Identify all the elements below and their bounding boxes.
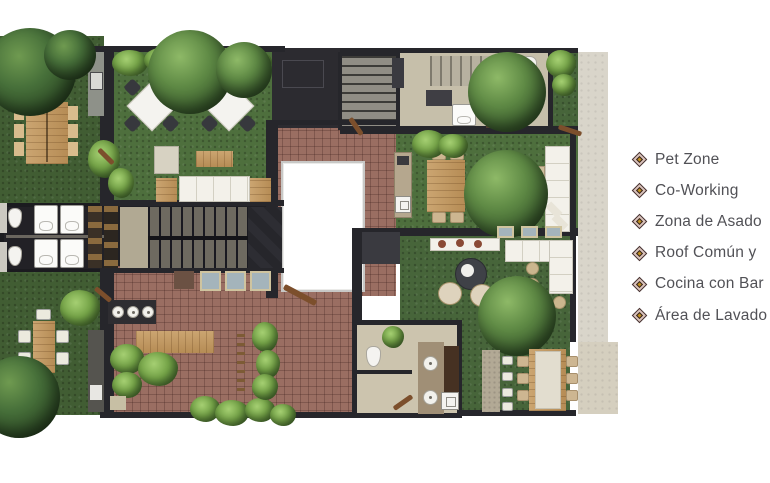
chair <box>18 330 31 343</box>
potted-plant <box>382 326 404 348</box>
legend-label: Cocina con Bar <box>655 275 764 293</box>
chair <box>56 330 69 343</box>
closet <box>426 90 452 106</box>
sidewalk-upper <box>578 52 608 342</box>
legend-label: Pet Zone <box>655 151 720 169</box>
roof-ladder <box>237 334 245 396</box>
skylight <box>521 226 538 238</box>
legend-item-zona-de-asado: Zona de Asado <box>634 206 770 237</box>
l-sofa-side <box>549 240 573 294</box>
legend-item-area-de-lavado: Área de Lavado <box>634 300 770 331</box>
chair <box>566 373 578 384</box>
bench <box>14 124 24 138</box>
side-table <box>156 178 177 202</box>
skylight <box>497 226 514 238</box>
roof-hatch <box>282 60 324 88</box>
legend-item-roof-comun: Roof Común y <box>634 238 770 269</box>
laundry-shelf <box>88 206 102 268</box>
stove <box>395 196 411 213</box>
stone-paver <box>482 350 500 412</box>
washing-machine <box>34 239 58 268</box>
washing-machine <box>60 205 84 234</box>
round-sink <box>127 306 139 318</box>
round-sink <box>423 390 438 405</box>
table-tray <box>461 264 474 277</box>
skylight <box>225 271 246 291</box>
washing-machine <box>60 239 84 268</box>
bush <box>215 400 249 426</box>
stove <box>441 392 459 410</box>
chair <box>56 352 69 365</box>
side-table <box>250 178 271 202</box>
tree <box>44 30 96 80</box>
tree <box>216 42 272 98</box>
planter-bush <box>108 168 134 198</box>
legend-label: Área de Lavado <box>655 307 767 325</box>
sofa <box>179 176 250 202</box>
round-sink <box>423 356 438 371</box>
wall <box>340 126 578 134</box>
bar-table <box>136 331 214 353</box>
outdoor-dining-table <box>535 351 561 409</box>
step-stone <box>502 402 513 411</box>
legend-label: Zona de Asado <box>655 213 762 231</box>
chair <box>517 390 529 401</box>
planter-bush <box>138 352 178 386</box>
hedge <box>252 374 278 400</box>
stair-winder <box>248 207 282 268</box>
coffee-table <box>196 151 233 167</box>
skylight <box>545 226 562 238</box>
exterior-ledge <box>0 242 7 272</box>
dark-counter <box>362 232 400 264</box>
legend-label: Roof Común y <box>655 244 756 262</box>
diamond-bullet-icon <box>632 183 648 199</box>
plant-pot <box>438 240 446 248</box>
bathroom-divider <box>356 370 412 374</box>
round-sink <box>142 306 154 318</box>
bench <box>68 124 78 138</box>
tree <box>468 52 546 132</box>
diamond-bullet-icon <box>632 214 648 230</box>
wall <box>340 48 578 53</box>
chair <box>566 356 578 367</box>
wall <box>570 134 576 234</box>
wall <box>266 120 396 125</box>
skylight <box>250 271 271 291</box>
diamond-bullet-icon <box>632 245 648 261</box>
cube-armchair <box>154 146 179 174</box>
diamond-bullet-icon <box>632 308 648 324</box>
bbq-grill <box>89 384 103 401</box>
stair-divider <box>148 236 248 240</box>
step-stone <box>502 372 513 381</box>
planter-bush <box>112 372 142 398</box>
page: { "legend": { "items": [ {"icon": "diamo… <box>0 0 770 483</box>
chair <box>517 356 529 367</box>
hedge <box>252 322 278 352</box>
sidewalk-lower <box>578 342 618 414</box>
legend-item-co-working: Co-Working <box>634 175 770 206</box>
stairwell-gray <box>338 52 400 130</box>
round-sink <box>112 306 124 318</box>
amenities-legend: Pet Zone Co-Working Zona de Asado Roof C… <box>634 144 770 331</box>
hedge <box>112 50 148 76</box>
wall <box>352 230 362 322</box>
bush <box>438 134 468 158</box>
chair <box>517 373 529 384</box>
legend-item-pet-zone: Pet Zone <box>634 144 770 175</box>
step-stone <box>502 356 513 365</box>
step-stone <box>502 388 513 397</box>
stool <box>526 262 539 275</box>
dining-table <box>427 160 465 212</box>
skylight <box>200 271 221 291</box>
exterior-ledge <box>0 203 7 233</box>
door-mat <box>174 271 194 289</box>
tree <box>464 150 548 238</box>
bush <box>60 290 100 326</box>
cabinet <box>392 58 404 88</box>
bench <box>68 106 78 120</box>
bush <box>270 404 296 426</box>
chair <box>450 212 464 223</box>
stair-run <box>148 239 248 268</box>
mat <box>110 396 126 410</box>
laundry-shelf <box>104 206 118 268</box>
diamond-bullet-icon <box>632 152 648 168</box>
kitchen-sink <box>397 156 409 165</box>
plant-pot <box>456 239 464 247</box>
legend-label: Co-Working <box>655 182 739 200</box>
chair <box>36 309 51 320</box>
bbq-grill <box>90 72 103 90</box>
hedge <box>552 74 576 96</box>
wardrobe <box>444 346 459 392</box>
plant-pot <box>474 240 482 248</box>
bench <box>14 142 24 156</box>
bench <box>68 142 78 156</box>
chair <box>432 212 446 223</box>
stair-run <box>148 207 248 236</box>
pouf-chair <box>438 282 462 305</box>
diamond-bullet-icon <box>632 277 648 293</box>
stair-landing <box>120 207 148 268</box>
washing-machine <box>34 205 58 234</box>
chair <box>566 390 578 401</box>
legend-item-cocina-con-bar: Cocina con Bar <box>634 269 770 300</box>
tree <box>478 276 556 356</box>
